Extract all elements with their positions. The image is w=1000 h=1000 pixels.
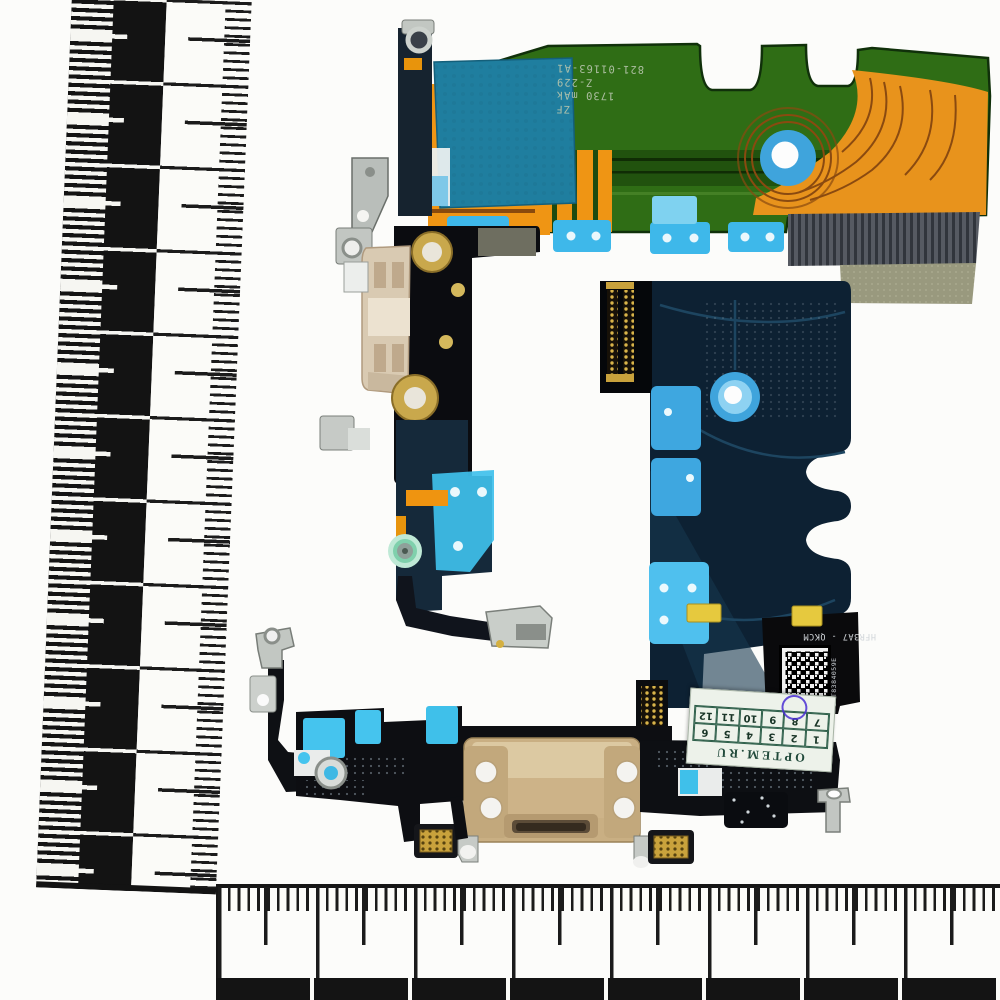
glossy-component <box>724 792 788 828</box>
label-cell: 6 <box>693 723 716 741</box>
label-cell: 4 <box>738 726 761 744</box>
flex-assembly-photo <box>0 0 1000 1000</box>
label-cell: 5 <box>716 724 739 742</box>
antenna-strip-top <box>398 20 434 216</box>
screw <box>365 167 375 177</box>
camera-hole <box>710 372 760 422</box>
port-slot-inner <box>516 823 586 831</box>
khaki-texture <box>840 263 976 304</box>
label-cell: 3 <box>760 727 783 745</box>
screw-ring <box>316 758 346 788</box>
metal-bracket <box>348 428 370 450</box>
label-cell: 10 <box>739 709 762 727</box>
teal-texture <box>434 58 576 208</box>
connector-pins <box>607 290 618 382</box>
middle-left-assembly <box>320 158 552 648</box>
bracket-ring <box>343 239 361 257</box>
label-cell: 2 <box>782 728 805 746</box>
receptacle-face <box>368 298 410 336</box>
qr-code <box>779 645 831 699</box>
orange-pad <box>406 490 448 506</box>
mint-grommet <box>388 534 422 568</box>
lightning-housing <box>464 738 640 842</box>
navy-flex-board <box>600 281 860 738</box>
label-cell: 9 <box>761 710 784 728</box>
cyan-patch <box>680 770 698 794</box>
inventory-label: OPTEM.RU 1 2 3 4 5 6 7 8 9 10 11 12 <box>686 688 836 773</box>
flex-texture <box>346 756 406 778</box>
thin-flex-arm <box>396 576 502 642</box>
gold-pad <box>687 604 721 622</box>
label-cell: 7 <box>806 713 829 731</box>
bracket-eyelet <box>265 629 279 643</box>
label-cell: 12 <box>694 706 717 724</box>
connector-cap <box>606 374 634 382</box>
connector-pins <box>623 290 634 382</box>
alignment-hole <box>772 142 799 169</box>
stub-pins <box>641 686 663 730</box>
label-cell: 11 <box>717 707 740 725</box>
gray-stiffener <box>478 228 536 256</box>
ribbed-stiffener <box>788 212 980 266</box>
label-cell: 1 <box>805 730 828 748</box>
gold-pad <box>792 606 822 626</box>
white-bracket <box>344 262 368 292</box>
microphone-right <box>633 830 694 868</box>
connector-cap <box>606 282 634 289</box>
bracket-hole <box>257 694 269 706</box>
bracket-hole <box>357 210 369 222</box>
silkscreen-line: ZF <box>555 101 697 117</box>
gold-dot <box>496 640 504 648</box>
contact-detail <box>516 624 546 640</box>
pcb-silkscreen-text: ZF 1730 mAk Z-229 821-01163-A1 <box>555 49 698 117</box>
silkscreen-line: 1730 mAk <box>556 88 698 104</box>
cyan-dot <box>298 752 310 764</box>
silkscreen-line: Z-229 <box>556 74 698 90</box>
metal-eyelet <box>408 29 430 51</box>
flex-part-code-text: HFR3A7 - QKCM <box>770 626 876 641</box>
